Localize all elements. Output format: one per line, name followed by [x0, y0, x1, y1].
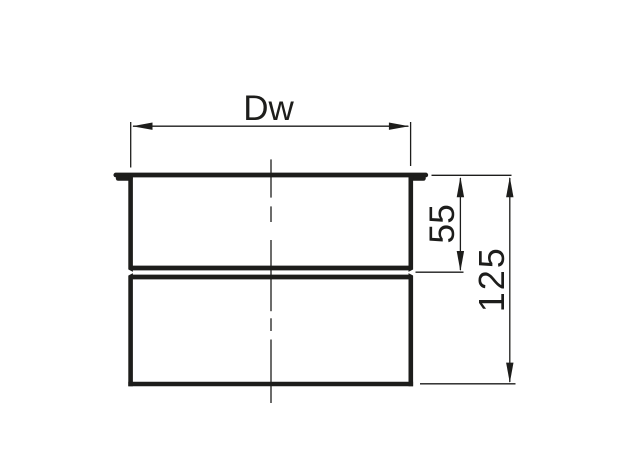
- svg-text:125: 125: [471, 246, 512, 312]
- svg-text:Dw: Dw: [243, 89, 294, 128]
- svg-text:55: 55: [422, 204, 462, 244]
